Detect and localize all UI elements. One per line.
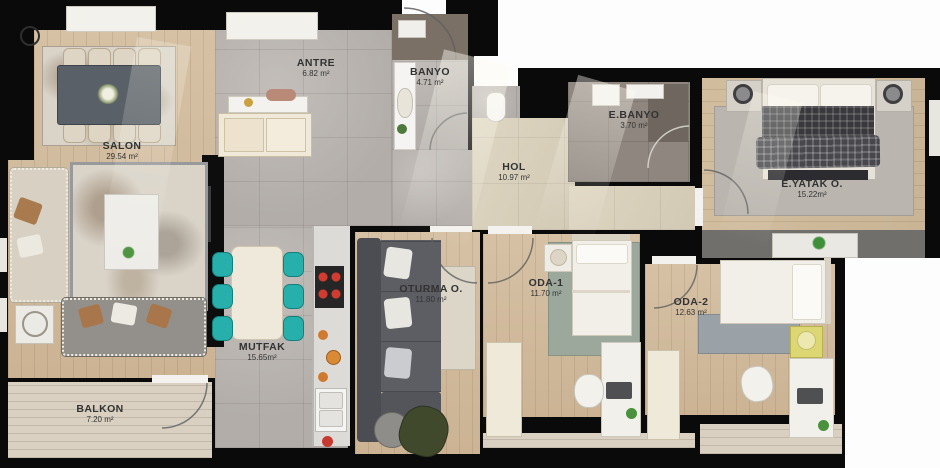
room-area: 7.20 m² [76, 415, 123, 424]
room-area: 15.65m² [239, 353, 285, 362]
room-area: 3.70 m² [609, 121, 660, 130]
room-name: MUTFAK [239, 341, 285, 353]
room-name: OTURMA O. [399, 283, 462, 295]
door-arc [404, 8, 456, 60]
room-area: 11.80 m² [399, 295, 462, 304]
door-arc [648, 126, 689, 168]
room-name: HOL [498, 161, 530, 173]
door-arc [704, 170, 748, 214]
room-area: 15.22m² [781, 190, 843, 199]
room-name: BANYO [410, 66, 450, 78]
room-area: 11.70 m² [529, 289, 564, 298]
door-arc [430, 113, 467, 150]
room-label-hol: HOL 10.97 m² [498, 161, 530, 183]
door-arc [432, 238, 477, 283]
room-label-antre: ANTRE 6.82 m² [297, 57, 335, 79]
door-arcs-layer [0, 0, 940, 468]
door-arc [488, 238, 533, 283]
room-label-oda2: ODA-2 12.63 m² [674, 296, 709, 318]
room-label-ebanyo: E.BANYO 3.70 m² [609, 109, 660, 131]
room-name: BALKON [76, 403, 123, 415]
room-label-oturma: OTURMA O. 11.80 m² [399, 283, 462, 305]
room-label-balkon: BALKON 7.20 m² [76, 403, 123, 425]
floor-plan: SALON 29.54 m² BALKON 7.20 m² ANTRE 6.82… [0, 0, 940, 468]
room-name: ODA-2 [674, 296, 709, 308]
room-area: 12.63 m² [674, 308, 709, 317]
room-name: ANTRE [297, 57, 335, 69]
room-area: 29.54 m² [103, 152, 142, 161]
room-area: 10.97 m² [498, 173, 530, 182]
room-area: 4.71 m² [410, 78, 450, 87]
room-name: SALON [103, 140, 142, 152]
room-name: E.BANYO [609, 109, 660, 121]
door-arc [162, 383, 207, 428]
room-area: 6.82 m² [297, 69, 335, 78]
room-label-salon: SALON 29.54 m² [103, 140, 142, 162]
room-label-oda1: ODA-1 11.70 m² [529, 277, 564, 299]
room-label-eyatak: E.YATAK O. 15.22m² [781, 178, 843, 200]
room-name: E.YATAK O. [781, 178, 843, 190]
room-label-banyo: BANYO 4.71 m² [410, 66, 450, 88]
room-label-mutfak: MUTFAK 15.65m² [239, 341, 285, 363]
room-name: ODA-1 [529, 277, 564, 289]
